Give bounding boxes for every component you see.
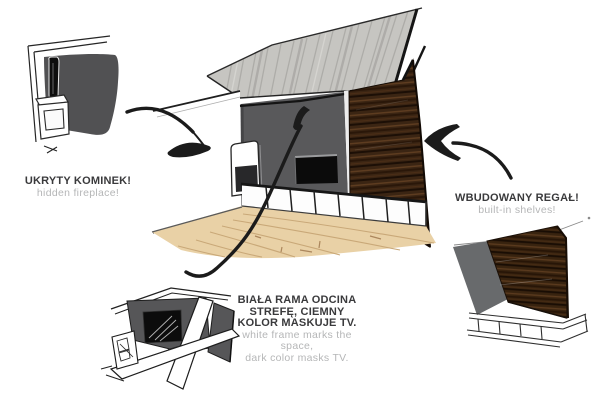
shelves-label-subtitle: built-in shelves! bbox=[436, 205, 598, 217]
fireplace-label: UKRYTY KOMINEK! hidden fireplace! bbox=[8, 176, 148, 199]
tv-frame-label-subtitle-line2: space, bbox=[213, 341, 381, 353]
fireplace-box bbox=[36, 95, 69, 139]
left-cabinet bbox=[112, 331, 138, 369]
shelves-detail-sketch bbox=[453, 217, 590, 347]
fireplace-detail-sketch bbox=[28, 36, 119, 153]
tv-frame-label-title-line1: BIAŁA RAMA ODCINA bbox=[213, 295, 381, 307]
shelves-label-title: WBUDOWANY REGAŁ! bbox=[436, 193, 598, 205]
tv-screen-detail bbox=[143, 310, 182, 343]
chimney-flue bbox=[49, 57, 59, 101]
arrow-to-built-in-shelves bbox=[424, 124, 511, 178]
fireplace-label-subtitle: hidden fireplace! bbox=[8, 188, 148, 200]
shelf-ladder-frame bbox=[467, 313, 588, 347]
design-board: UKRYTY KOMINEK! hidden fireplace! WBUDOW… bbox=[0, 0, 600, 400]
shelves-label: WBUDOWANY REGAŁ! built-in shelves! bbox=[436, 193, 598, 216]
guide-dot bbox=[588, 217, 591, 220]
tv-frame-label-title-line3: KOLOR MASKUJE TV. bbox=[213, 318, 381, 330]
sketch-scribble bbox=[44, 146, 57, 153]
wood-shelf-panel bbox=[487, 226, 568, 318]
tv-frame-label-subtitle-line3: dark color masks TV. bbox=[213, 353, 381, 365]
fireplace-label-title: UKRYTY KOMINEK! bbox=[8, 176, 148, 188]
tv-screen bbox=[295, 155, 338, 184]
tv-frame-label: BIAŁA RAMA ODCINA STREFĘ, CIEMNY KOLOR M… bbox=[213, 295, 381, 364]
